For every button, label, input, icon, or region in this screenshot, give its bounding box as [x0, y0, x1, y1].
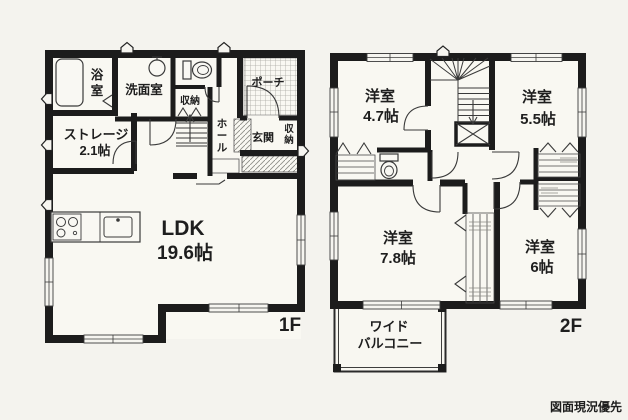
room-size-bedroom-sw: 7.8帖 [380, 249, 416, 267]
washbasin-icon [149, 60, 165, 76]
room-size-bedroom-se: 6帖 [530, 258, 553, 276]
floor-label-1f: 1F [279, 315, 301, 336]
room-label-bath-char1: 浴 [91, 67, 104, 82]
kitchen-counter-icon [51, 212, 140, 242]
room-label-hall-char3: ル [217, 142, 228, 154]
room-label-entrance: 玄関 [252, 130, 274, 144]
entrance-lower-hatch [242, 156, 299, 172]
room-label-hall-char1: ホ [217, 118, 228, 130]
floor-plan-page: 浴 室 洗面室 収納 ポーチ ホ ー ル 玄関 収 納 ストレージ 2.1帖 L… [0, 0, 628, 420]
room-label-porch: ポーチ [252, 75, 285, 89]
room-label-ldk: LDK [161, 217, 204, 240]
window [45, 258, 53, 306]
room-label-bedroom-se: 洋室 [525, 238, 555, 256]
bathtub-icon [56, 59, 83, 106]
room-label-entrance-closet-char2: 納 [284, 134, 294, 146]
balcony-label-line1: ワイド [369, 319, 408, 334]
window [367, 54, 413, 62]
toilet-icon [183, 61, 212, 79]
room-label-washroom: 洗面室 [125, 82, 163, 97]
room-label-bedroom-ne: 洋室 [522, 88, 552, 106]
window [578, 229, 586, 279]
window [511, 54, 562, 62]
room-size-bedroom-nw: 4.7帖 [363, 107, 399, 125]
fixtures-2f [380, 154, 398, 179]
window [330, 212, 338, 260]
window [578, 88, 586, 137]
window [330, 88, 338, 137]
room-label-hall-char2: ー [217, 130, 228, 142]
room-size-ldk: 19.6帖 [157, 241, 213, 264]
window [500, 301, 552, 309]
balcony-label-line2: バルコニー [358, 336, 423, 351]
drawing-priority-note: 図面現況優先 [550, 399, 622, 414]
balcony-sliding-window [363, 301, 440, 309]
room-size-storage: 2.1帖 [79, 143, 110, 158]
room-label-bedroom-nw: 洋室 [365, 87, 395, 105]
floor-label-2f: 2F [560, 316, 582, 337]
entrance-step [209, 159, 239, 173]
window [84, 335, 143, 343]
room-label-bath-char2: 室 [91, 83, 104, 98]
room-label-storage: ストレージ [64, 127, 129, 142]
room-label-entrance-closet-char1: 収 [284, 123, 294, 135]
entrance-step-hatch [234, 119, 251, 152]
floor-plan-canvas: 浴 室 洗面室 収納 ポーチ ホ ー ル 玄関 収 納 ストレージ 2.1帖 L… [0, 0, 628, 420]
window [209, 304, 268, 312]
floor-1f-interior-lower [49, 308, 162, 339]
toilet-icon [380, 154, 398, 179]
floor-1f: 浴 室 洗面室 収納 ポーチ ホ ー ル 玄関 収 納 ストレージ 2.1帖 L… [42, 43, 309, 344]
room-size-bedroom-ne: 5.5帖 [520, 110, 556, 128]
window [297, 215, 305, 265]
room-label-closet: 収納 [180, 94, 200, 107]
room-label-bedroom-sw: 洋室 [383, 229, 413, 247]
